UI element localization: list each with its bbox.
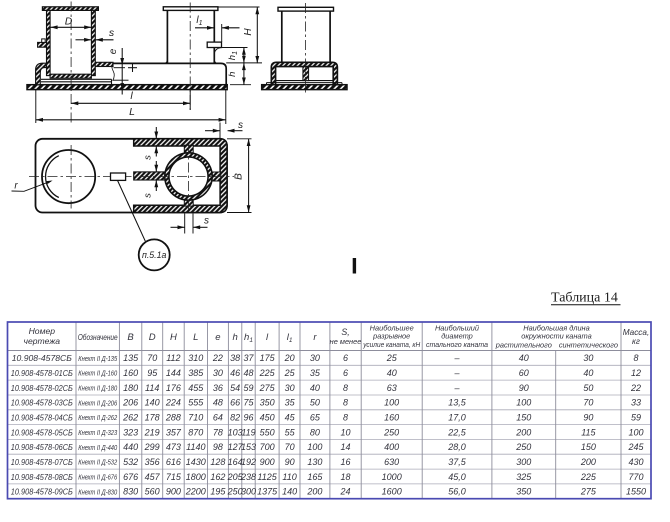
svg-text:6: 6	[343, 353, 348, 363]
svg-text:195: 195	[210, 487, 226, 497]
svg-text:Масса,: Масса,	[623, 328, 649, 337]
svg-text:100: 100	[307, 442, 322, 452]
svg-text:75: 75	[243, 398, 254, 408]
svg-text:12: 12	[631, 368, 641, 378]
svg-text:усилие каната, кН: усилие каната, кН	[362, 340, 420, 349]
svg-text:8: 8	[343, 413, 348, 423]
svg-text:13,5: 13,5	[448, 398, 467, 408]
svg-text:2200: 2200	[185, 487, 206, 497]
svg-text:430: 430	[628, 457, 643, 467]
svg-text:160: 160	[123, 368, 138, 378]
svg-text:532: 532	[123, 457, 138, 467]
svg-text:45,0: 45,0	[448, 472, 466, 482]
svg-text:299: 299	[144, 442, 160, 452]
svg-text:100: 100	[516, 398, 531, 408]
svg-text:700: 700	[260, 442, 275, 452]
svg-text:1800: 1800	[186, 472, 206, 482]
svg-text:s: s	[109, 27, 115, 39]
svg-text:35: 35	[310, 368, 321, 378]
svg-text:70: 70	[583, 398, 593, 408]
svg-text:H: H	[170, 332, 177, 343]
svg-text:D: D	[65, 15, 73, 27]
svg-text:22,5: 22,5	[447, 427, 467, 437]
svg-text:25: 25	[284, 368, 296, 378]
svg-text:33: 33	[631, 398, 641, 408]
svg-text:50: 50	[583, 383, 593, 393]
svg-text:46: 46	[230, 368, 240, 378]
svg-text:900: 900	[166, 487, 181, 497]
svg-text:130: 130	[307, 457, 322, 467]
svg-text:36: 36	[213, 383, 223, 393]
svg-text:D: D	[149, 332, 156, 343]
svg-text:L: L	[193, 332, 198, 343]
svg-text:90: 90	[285, 457, 295, 467]
svg-text:–: –	[453, 368, 460, 378]
svg-text:50: 50	[310, 398, 320, 408]
svg-text:870: 870	[188, 427, 203, 437]
svg-text:Кнехт II Д-323: Кнехт II Д-323	[78, 428, 117, 437]
svg-text:10.908-4578СБ: 10.908-4578СБ	[12, 353, 72, 363]
svg-text:140: 140	[145, 398, 160, 408]
svg-text:6: 6	[343, 368, 348, 378]
svg-text:78: 78	[213, 427, 223, 437]
svg-text:37: 37	[243, 353, 254, 363]
svg-text:1375: 1375	[257, 487, 278, 497]
svg-text:165: 165	[307, 472, 323, 482]
svg-text:900: 900	[260, 457, 275, 467]
svg-text:растительного: растительного	[495, 341, 552, 350]
svg-text:150: 150	[516, 413, 531, 423]
svg-text:275: 275	[259, 383, 276, 393]
svg-text:440: 440	[123, 442, 138, 452]
svg-text:114: 114	[145, 383, 159, 393]
svg-text:200: 200	[580, 457, 596, 467]
svg-text:L: L	[129, 106, 135, 118]
svg-text:8: 8	[633, 353, 638, 363]
svg-text:65: 65	[310, 413, 321, 423]
svg-text:40: 40	[583, 368, 593, 378]
svg-text:128: 128	[210, 457, 225, 467]
svg-text:450: 450	[260, 413, 275, 423]
svg-text:Кнехт II Д-676: Кнехт II Д-676	[78, 473, 117, 482]
svg-text:153: 153	[241, 442, 256, 452]
svg-text:300: 300	[516, 457, 531, 467]
svg-text:1600: 1600	[382, 487, 402, 497]
svg-text:стального каната: стального каната	[426, 340, 488, 349]
svg-text:225: 225	[580, 472, 597, 482]
svg-text:Номер: Номер	[29, 326, 56, 336]
svg-text:96: 96	[243, 413, 253, 423]
svg-text:синтетического: синтетического	[559, 341, 618, 350]
svg-text:175: 175	[260, 353, 276, 363]
svg-text:40: 40	[310, 383, 320, 393]
svg-text:Кнехт II Д-532: Кнехт II Д-532	[78, 458, 117, 467]
svg-text:112: 112	[166, 353, 180, 363]
svg-text:325: 325	[516, 472, 532, 482]
svg-text:не менее: не менее	[330, 337, 362, 346]
svg-text:119: 119	[241, 427, 255, 437]
svg-text:30: 30	[213, 368, 223, 378]
svg-text:B: B	[127, 332, 134, 343]
svg-text:162: 162	[210, 472, 225, 482]
svg-text:95: 95	[147, 368, 158, 378]
svg-text:45: 45	[285, 413, 296, 423]
svg-text:830: 830	[123, 487, 138, 497]
svg-text:16: 16	[340, 457, 350, 467]
svg-text:s: s	[143, 193, 154, 198]
svg-text:250: 250	[515, 442, 531, 452]
svg-text:e: e	[108, 48, 119, 54]
svg-text:1125: 1125	[257, 472, 277, 482]
svg-text:37,5: 37,5	[448, 457, 467, 467]
svg-text:1000: 1000	[382, 472, 402, 482]
svg-text:250: 250	[383, 427, 399, 437]
svg-text:82: 82	[230, 413, 240, 423]
svg-text:Кнехт II Д-180: Кнехт II Д-180	[78, 384, 117, 393]
svg-text:8: 8	[343, 398, 348, 408]
svg-text:288: 288	[165, 413, 181, 423]
svg-text:300: 300	[241, 487, 256, 497]
svg-text:275: 275	[580, 487, 597, 497]
svg-text:1550: 1550	[626, 487, 646, 497]
svg-text:25: 25	[386, 353, 398, 363]
svg-text:Кнехт II Д-262: Кнехт II Д-262	[78, 413, 117, 422]
svg-text:60: 60	[519, 368, 529, 378]
svg-text:–: –	[453, 353, 460, 363]
svg-text:55: 55	[285, 427, 296, 437]
svg-text:22: 22	[630, 383, 641, 393]
svg-text:550: 550	[260, 427, 275, 437]
svg-text:225: 225	[259, 368, 276, 378]
svg-text:h: h	[227, 72, 238, 77]
svg-text:356: 356	[145, 457, 160, 467]
svg-text:160: 160	[384, 413, 399, 423]
svg-text:385: 385	[188, 368, 204, 378]
svg-text:150: 150	[581, 442, 596, 452]
svg-text:48: 48	[213, 398, 223, 408]
svg-text:Кнехт II Д-206: Кнехт II Д-206	[78, 398, 117, 407]
svg-text:710: 710	[188, 413, 203, 423]
svg-text:30: 30	[310, 353, 320, 363]
svg-text:192: 192	[241, 457, 256, 467]
svg-text:560: 560	[145, 487, 160, 497]
svg-text:224: 224	[165, 398, 181, 408]
svg-text:30: 30	[285, 383, 295, 393]
svg-text:Кнехт II Д-830: Кнехт II Д-830	[78, 487, 117, 496]
svg-text:555: 555	[188, 398, 204, 408]
svg-text:24: 24	[339, 487, 350, 497]
svg-text:100: 100	[384, 398, 399, 408]
svg-text:B: B	[234, 173, 245, 180]
svg-text:35: 35	[285, 398, 296, 408]
svg-text:Кнехт II Д-135: Кнехт II Д-135	[78, 354, 118, 363]
svg-text:54: 54	[230, 383, 240, 393]
svg-text:Кнехт II Д-160: Кнехт II Д-160	[78, 369, 117, 378]
svg-text:238: 238	[240, 472, 256, 482]
svg-text:245: 245	[627, 442, 644, 452]
svg-text:20: 20	[284, 353, 295, 363]
svg-text:10.908-4578-07СБ: 10.908-4578-07СБ	[11, 457, 73, 467]
svg-text:Обозначение: Обозначение	[78, 333, 118, 342]
svg-text:135: 135	[123, 353, 139, 363]
svg-text:8: 8	[343, 383, 348, 393]
svg-text:s: s	[204, 216, 209, 227]
svg-text:66: 66	[230, 398, 240, 408]
svg-text:10.908-4578-09СБ: 10.908-4578-09СБ	[11, 487, 73, 497]
svg-text:357: 357	[166, 427, 182, 437]
svg-text:10.908-4578-03СБ: 10.908-4578-03СБ	[11, 398, 73, 408]
svg-text:22: 22	[212, 353, 223, 363]
svg-text:1140: 1140	[186, 442, 205, 452]
svg-text:10.908-4578-02СБ: 10.908-4578-02СБ	[11, 383, 73, 393]
svg-text:178: 178	[145, 413, 160, 423]
svg-text:140: 140	[282, 487, 297, 497]
svg-text:98: 98	[213, 442, 223, 452]
svg-text:457: 457	[145, 472, 161, 482]
svg-text:e: e	[215, 332, 220, 343]
svg-text:17,0: 17,0	[448, 413, 466, 423]
svg-text:64: 64	[213, 413, 223, 423]
svg-text:473: 473	[166, 442, 181, 452]
svg-text:чертежа: чертежа	[24, 336, 61, 346]
svg-text:715: 715	[166, 472, 182, 482]
svg-text:s: s	[238, 120, 243, 131]
svg-text:455: 455	[188, 383, 204, 393]
svg-text:40: 40	[387, 368, 397, 378]
svg-text:770: 770	[628, 472, 643, 482]
svg-text:310: 310	[188, 353, 203, 363]
svg-text:18: 18	[340, 472, 350, 482]
svg-text:80: 80	[310, 427, 320, 437]
svg-text:70: 70	[147, 353, 157, 363]
svg-text:110: 110	[282, 472, 296, 482]
svg-text:180: 180	[123, 383, 138, 393]
svg-text:219: 219	[144, 427, 160, 437]
svg-text:10.908-4578-08СБ: 10.908-4578-08СБ	[11, 472, 73, 482]
svg-text:323: 323	[123, 427, 138, 437]
svg-text:п.5.1а: п.5.1а	[142, 250, 167, 260]
svg-text:262: 262	[122, 413, 138, 423]
svg-text:40: 40	[519, 353, 529, 363]
svg-text:h: h	[232, 332, 237, 343]
svg-text:48: 48	[243, 368, 253, 378]
svg-text:s: s	[143, 155, 154, 160]
svg-text:676: 676	[123, 472, 138, 482]
svg-text:28,0: 28,0	[447, 442, 466, 452]
svg-text:400: 400	[384, 442, 399, 452]
svg-text:630: 630	[384, 457, 399, 467]
svg-text:350: 350	[260, 398, 275, 408]
svg-text:кг: кг	[632, 337, 640, 346]
svg-text:100: 100	[628, 427, 643, 437]
svg-text:S,: S,	[341, 327, 349, 337]
svg-text:Таблица 14: Таблица 14	[551, 291, 618, 306]
svg-text:30: 30	[583, 353, 593, 363]
svg-text:10: 10	[340, 427, 350, 437]
svg-text:90: 90	[519, 383, 529, 393]
svg-text:56,0: 56,0	[448, 487, 466, 497]
svg-text:Кнехт II Д-440: Кнехт II Д-440	[78, 443, 117, 452]
svg-text:59: 59	[243, 383, 253, 393]
svg-text:63: 63	[387, 383, 397, 393]
svg-text:59: 59	[631, 413, 641, 423]
svg-text:144: 144	[166, 368, 181, 378]
svg-text:350: 350	[516, 487, 531, 497]
svg-text:H: H	[243, 28, 254, 36]
svg-text:176: 176	[166, 383, 181, 393]
svg-text:10.908-4578-05СБ: 10.908-4578-05СБ	[11, 427, 73, 437]
svg-text:10.908-4578-01СБ: 10.908-4578-01СБ	[11, 368, 73, 378]
svg-text:38: 38	[230, 353, 240, 363]
svg-text:200: 200	[306, 487, 322, 497]
svg-text:616: 616	[166, 457, 181, 467]
svg-text:10.908-4578-06СБ: 10.908-4578-06СБ	[11, 442, 73, 452]
svg-text:90: 90	[583, 413, 593, 423]
svg-text:–: –	[453, 383, 460, 393]
svg-text:10.908-4578-04СБ: 10.908-4578-04СБ	[11, 413, 73, 423]
svg-text:70: 70	[285, 442, 295, 452]
svg-text:206: 206	[122, 398, 138, 408]
svg-text:115: 115	[581, 427, 596, 437]
svg-text:окружности каната: окружности каната	[521, 332, 591, 341]
svg-text:200: 200	[515, 427, 531, 437]
svg-text:14: 14	[340, 442, 350, 452]
svg-text:1430: 1430	[186, 457, 206, 467]
